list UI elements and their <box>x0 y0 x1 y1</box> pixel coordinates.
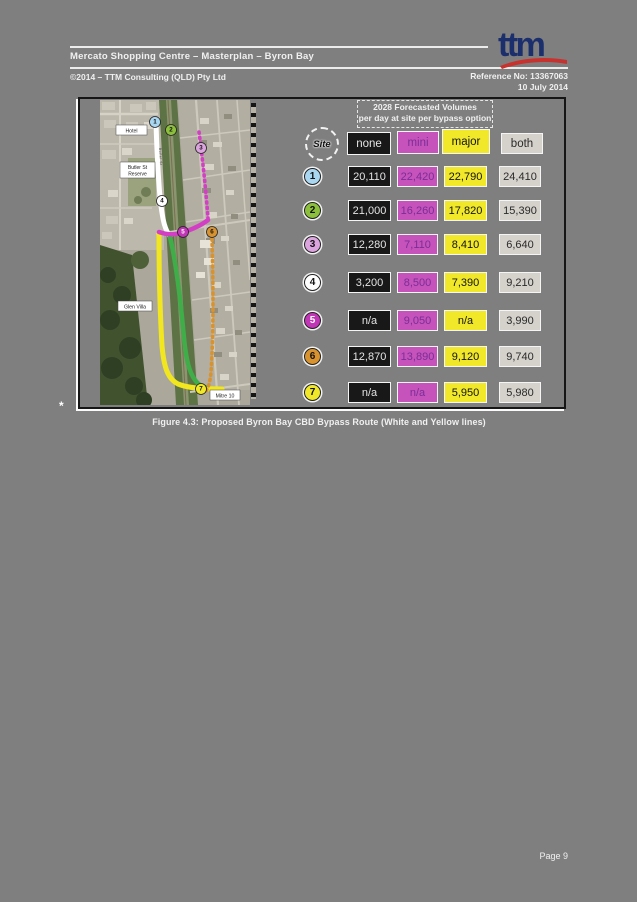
value-major: 9,120 <box>444 346 487 367</box>
value-both: 15,390 <box>499 200 541 221</box>
value-major: 8,410 <box>444 234 487 255</box>
value-none: 21,000 <box>348 200 391 221</box>
map-site-2: 2 <box>166 125 177 136</box>
svg-text:2: 2 <box>169 127 173 134</box>
value-mini: 22,420 <box>397 166 438 187</box>
table-row: 6 12,870 13,890 9,120 9,740 <box>80 346 564 368</box>
value-major: n/a <box>444 310 487 331</box>
site-header-circle: Site <box>305 127 339 161</box>
table-title-line1: 2028 Forecasted Volumes <box>358 102 492 113</box>
value-none: 20,110 <box>348 166 391 187</box>
value-both: 6,640 <box>499 234 541 255</box>
copyright-line: ©2014 – TTM Consulting (QLD) Pty Ltd <box>70 72 226 82</box>
value-both: 9,740 <box>499 346 541 367</box>
document-date: 10 July 2014 <box>470 82 568 93</box>
site-badge: 3 <box>304 236 321 253</box>
table-title: 2028 Forecasted Volumes per day at site … <box>357 100 493 128</box>
value-none: 3,200 <box>348 272 391 293</box>
ttm-logo-svg: ttm <box>496 26 569 72</box>
selection-handle-mark: * <box>59 399 64 413</box>
value-none: 12,280 <box>348 234 391 255</box>
table-row: 7 n/a n/a 5,950 5,980 <box>80 382 564 404</box>
table-title-line2: per day at site per bypass option <box>358 113 492 124</box>
table-row: 1 20,110 22,420 22,790 24,410 <box>80 166 564 188</box>
value-major: 17,820 <box>444 200 487 221</box>
column-header-major: major <box>442 129 490 154</box>
reference-block: Reference No: 13367063 10 July 2014 <box>470 71 568 93</box>
value-both: 3,990 <box>499 310 541 331</box>
table-row: 5 n/a 9,050 n/a 3,990 <box>80 310 564 332</box>
table-row: 2 21,000 16,260 17,820 15,390 <box>80 200 564 222</box>
svg-text:3: 3 <box>199 145 203 152</box>
value-major: 22,790 <box>444 166 487 187</box>
figure-caption: Figure 4.3: Proposed Byron Bay CBD Bypas… <box>70 417 568 427</box>
site-badge: 5 <box>304 312 321 329</box>
reference-number: Reference No: 13367063 <box>470 71 568 82</box>
site-header-label: Site <box>313 139 330 150</box>
map-site-1: 1 <box>150 117 161 128</box>
value-both: 24,410 <box>499 166 541 187</box>
svg-text:1: 1 <box>153 119 157 126</box>
value-mini: 8,500 <box>397 272 438 293</box>
page-number: Page 9 <box>539 851 568 861</box>
site-badge: 6 <box>304 348 321 365</box>
value-major: 7,390 <box>444 272 487 293</box>
value-none: n/a <box>348 382 391 403</box>
value-both: 9,210 <box>499 272 541 293</box>
column-header-both: both <box>501 133 543 154</box>
column-header-none: none <box>347 132 391 155</box>
value-mini: 13,890 <box>397 346 438 367</box>
value-major: 5,950 <box>444 382 487 403</box>
figure-box: Butler St Hotel Butler St Reserve <box>78 97 566 409</box>
map-label-hotel: Hotel <box>116 125 147 135</box>
table-row: 4 3,200 8,500 7,390 9,210 <box>80 272 564 294</box>
value-mini: 7,110 <box>397 234 438 255</box>
ttm-logo: ttm <box>496 26 569 72</box>
value-mini: 9,050 <box>397 310 438 331</box>
site-badge: 7 <box>304 384 321 401</box>
value-mini: 16,260 <box>397 200 438 221</box>
value-mini: n/a <box>397 382 438 403</box>
header-rule <box>70 67 568 69</box>
header-rule-top <box>70 46 488 48</box>
table-row: 3 12,280 7,110 8,410 6,640 <box>80 234 564 256</box>
value-none: 12,870 <box>348 346 391 367</box>
site-badge: 1 <box>304 168 321 185</box>
site-badge: 2 <box>304 202 321 219</box>
svg-text:Hotel: Hotel <box>125 128 137 134</box>
value-none: n/a <box>348 310 391 331</box>
value-both: 5,980 <box>499 382 541 403</box>
column-header-mini: mini <box>397 131 439 154</box>
map-site-3: 3 <box>196 143 207 154</box>
document-title: Mercato Shopping Centre – Masterplan – B… <box>70 51 314 62</box>
site-badge: 4 <box>304 274 321 291</box>
